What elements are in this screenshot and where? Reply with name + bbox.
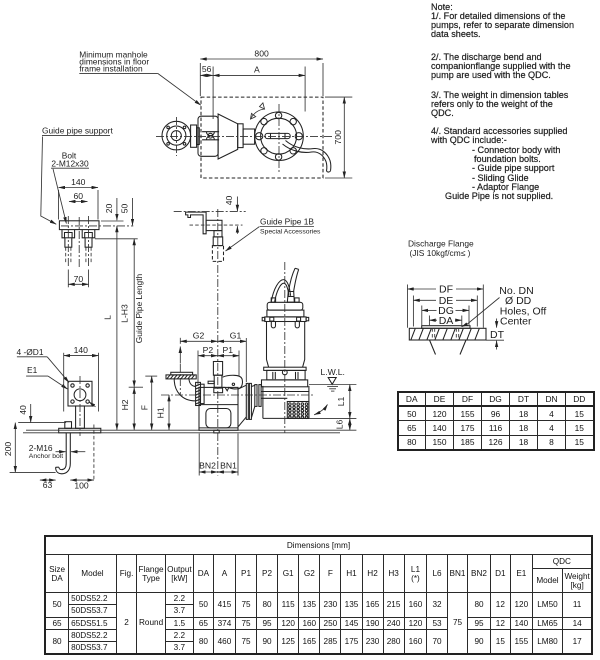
svg-text:DF: DF (439, 284, 453, 296)
svg-text:4 -ØD1: 4 -ØD1 (17, 347, 44, 357)
svg-text:140: 140 (71, 177, 86, 187)
svg-text:L6: L6 (335, 420, 345, 430)
svg-text:G2: G2 (193, 330, 205, 340)
svg-text:140: 140 (74, 345, 89, 355)
svg-text:Guide Pipe 1B: Guide Pipe 1B (260, 217, 314, 227)
svg-text:200: 200 (3, 442, 13, 457)
svg-text:L-H3: L-H3 (119, 304, 129, 323)
svg-text:2-M16: 2-M16 (29, 443, 53, 453)
svg-text:G1: G1 (230, 330, 242, 340)
svg-text:P2: P2 (203, 345, 214, 355)
svg-text:800: 800 (254, 49, 269, 59)
svg-text:(JIS 10kgf/cm≤ ): (JIS 10kgf/cm≤ ) (410, 248, 471, 258)
svg-text:20: 20 (104, 204, 114, 214)
svg-text:56: 56 (202, 64, 212, 74)
svg-text:70: 70 (74, 274, 84, 284)
svg-text:100: 100 (74, 480, 89, 490)
svg-text:Guide pipe support: Guide pipe support (42, 125, 113, 135)
svg-text:L1: L1 (336, 397, 346, 407)
svg-text:H2: H2 (120, 399, 130, 410)
svg-text:P1: P1 (223, 345, 234, 355)
svg-text:Guide Pipe Length: Guide Pipe Length (134, 273, 144, 343)
svg-text:E1: E1 (27, 365, 38, 375)
svg-text:BN1: BN1 (220, 461, 237, 471)
svg-text:frame installation: frame installation (79, 64, 143, 74)
svg-text:Anchor bolt: Anchor bolt (29, 453, 63, 460)
svg-text:L.W.L.: L.W.L. (321, 367, 345, 377)
svg-text:Special Accessories: Special Accessories (260, 229, 321, 236)
svg-text:H1: H1 (156, 407, 166, 418)
svg-text:L: L (103, 315, 113, 320)
svg-text:A: A (254, 64, 260, 74)
svg-text:DT: DT (490, 329, 505, 341)
svg-text:63: 63 (43, 480, 53, 490)
svg-text:700: 700 (333, 130, 343, 145)
svg-text:DA: DA (439, 315, 454, 327)
svg-text:2-M12x30: 2-M12x30 (51, 158, 89, 168)
svg-text:60: 60 (74, 191, 84, 201)
svg-text:F: F (139, 405, 149, 410)
svg-text:BN2: BN2 (199, 461, 216, 471)
svg-text:50: 50 (120, 204, 130, 214)
svg-text:Center: Center (500, 316, 532, 328)
svg-text:40: 40 (18, 405, 28, 415)
svg-text:40: 40 (224, 196, 234, 206)
